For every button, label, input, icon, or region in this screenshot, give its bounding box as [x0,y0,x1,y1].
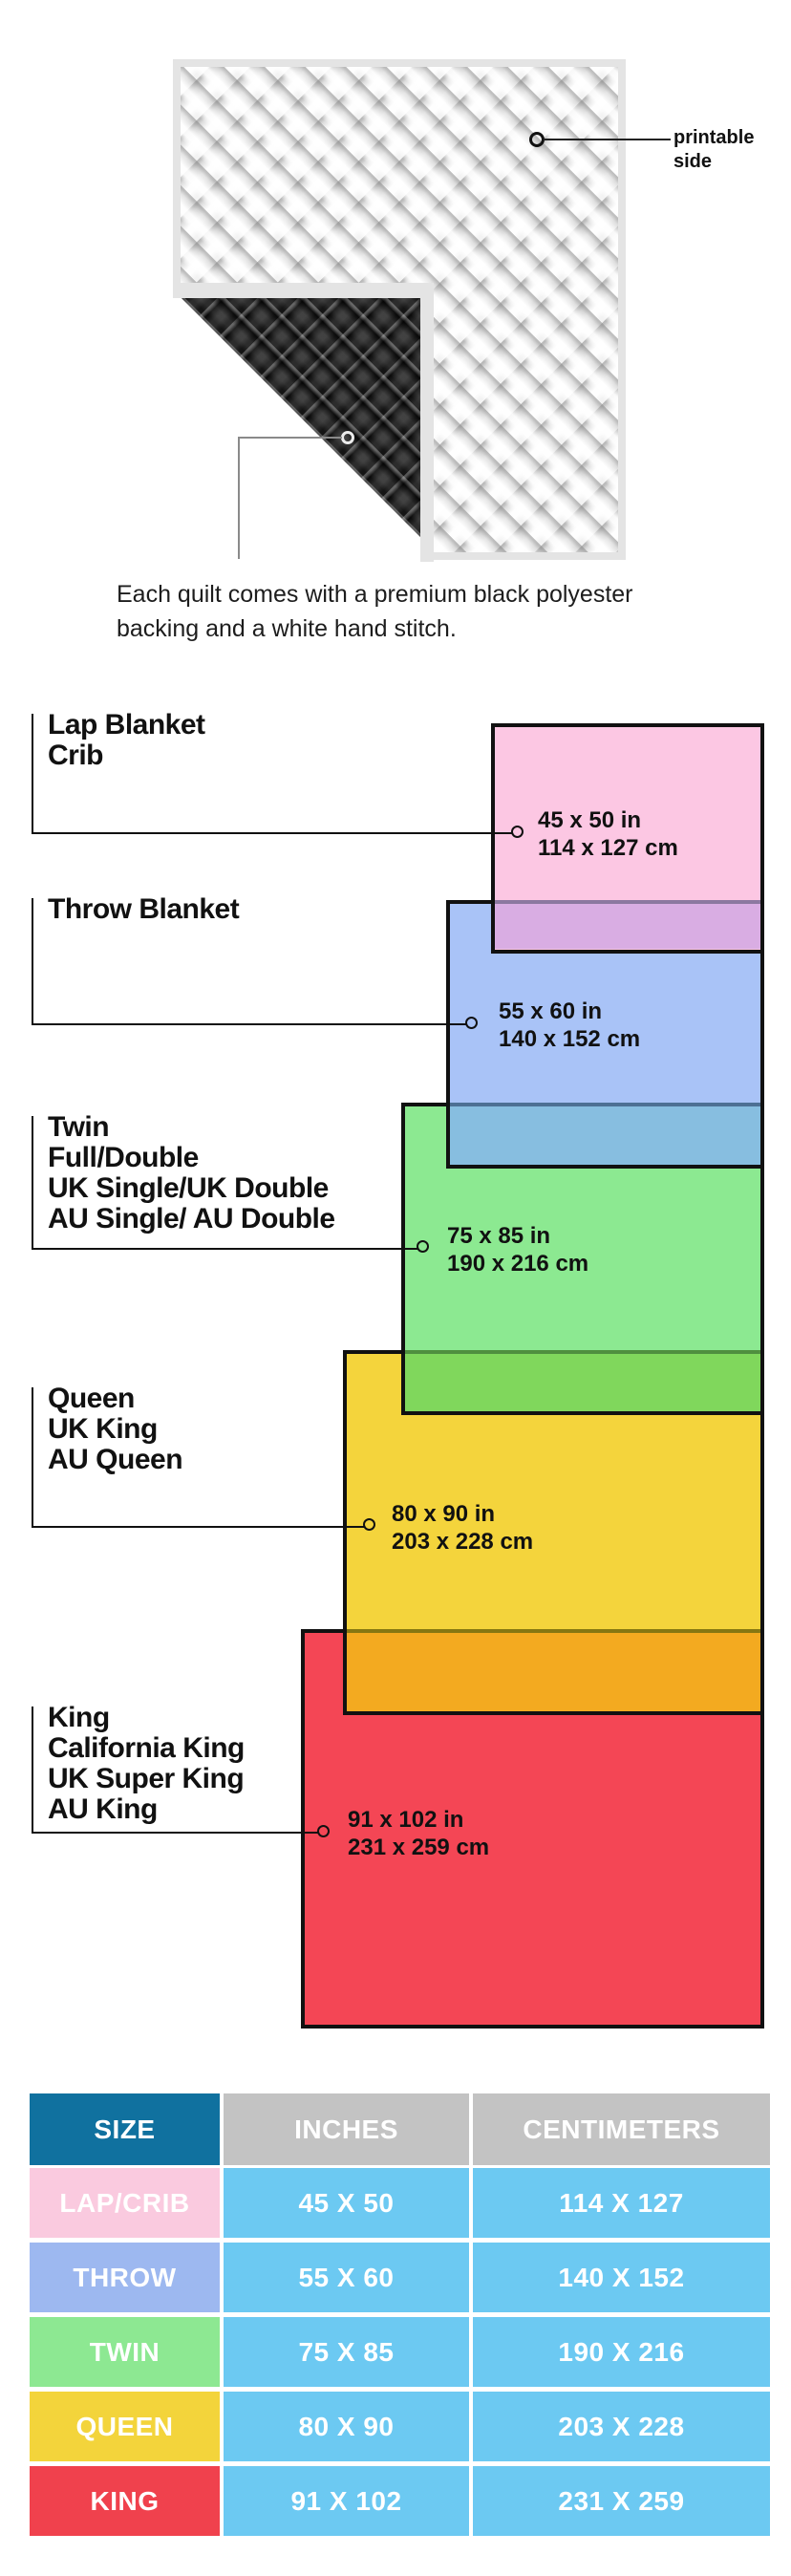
table-row-lap-inches: 45 X 50 [224,2168,469,2238]
table-header-centimeters: CENTIMETERS [473,2093,770,2165]
dimensions-king-cm: 231 x 259 cm [348,1834,489,1861]
table-header-size: SIZE [30,2093,220,2165]
size-table: SIZE INCHES CENTIMETERS LAP/CRIB 45 X 50… [30,2093,770,2536]
table-row-king-inches: 91 X 102 [224,2466,469,2536]
quilt-binding-vertical [420,283,434,562]
dimensions-throw-cm: 140 x 152 cm [499,1025,640,1053]
table-header-inches: INCHES [224,2093,469,2165]
leader-dot-queen-icon [363,1518,375,1531]
printable-side-marker-icon [529,132,545,147]
table-row-queen-cm: 203 X 228 [473,2392,770,2461]
leader-dot-twin-icon [417,1240,429,1253]
printable-side-leader-line [544,139,671,140]
dimensions-lap-inches: 45 x 50 in [538,806,678,834]
dimensions-king-inches: 91 x 102 in [348,1806,489,1834]
dimensions-twin: 75 x 85 in 190 x 216 cm [447,1222,588,1277]
dimensions-queen-inches: 80 x 90 in [392,1500,533,1528]
dimensions-lap-cm: 114 x 127 cm [538,834,678,862]
backing-leader-line-h [239,437,342,439]
dimensions-lap: 45 x 50 in 114 x 127 cm [538,806,678,862]
overlap-band-twin-queen [405,1350,760,1411]
dimensions-twin-cm: 190 x 216 cm [447,1250,588,1277]
dimensions-throw: 55 x 60 in 140 x 152 cm [499,998,640,1053]
table-row-twin-name: TWIN [30,2317,220,2387]
backing-leader-line-v [238,437,240,559]
table-row-queen-name: QUEEN [30,2392,220,2461]
leader-bracket-king [32,1707,319,1834]
overlap-band-throw-twin [450,1103,760,1165]
table-row-throw-name: THROW [30,2243,220,2312]
table-row-lap-cm: 114 X 127 [473,2168,770,2238]
leader-dot-lap-icon [511,826,524,838]
table-row-throw-inches: 55 X 60 [224,2243,469,2312]
table-row-queen-inches: 80 X 90 [224,2392,469,2461]
table-row-twin-inches: 75 X 85 [224,2317,469,2387]
table-row-king-cm: 231 X 259 [473,2466,770,2536]
table-row-lap-name: LAP/CRIB [30,2168,220,2238]
leader-dot-king-icon [317,1825,330,1837]
backing-marker-icon [341,431,354,444]
dimensions-throw-inches: 55 x 60 in [499,998,640,1025]
leader-bracket-twin [32,1116,418,1250]
overlap-band-lap-throw [495,900,760,949]
table-row-twin-cm: 190 X 216 [473,2317,770,2387]
leader-bracket-lap [32,714,512,834]
table-row-king-name: KING [30,2466,220,2536]
quilt-caption: Each quilt comes with a premium black po… [117,577,633,646]
quilt-binding-horizontal [173,283,434,298]
leader-bracket-queen [32,1387,365,1528]
leader-dot-throw-icon [465,1017,478,1029]
dimensions-queen-cm: 203 x 228 cm [392,1528,533,1556]
overlap-band-queen-king [347,1629,760,1711]
leader-bracket-throw [32,898,467,1025]
printable-side-label: printable side [673,126,754,174]
size-chart-infographic: printable side Each quilt comes with a p… [0,0,791,2576]
dimensions-twin-inches: 75 x 85 in [447,1222,588,1250]
table-row-throw-cm: 140 X 152 [473,2243,770,2312]
dimensions-king: 91 x 102 in 231 x 259 cm [348,1806,489,1861]
dimensions-queen: 80 x 90 in 203 x 228 cm [392,1500,533,1556]
